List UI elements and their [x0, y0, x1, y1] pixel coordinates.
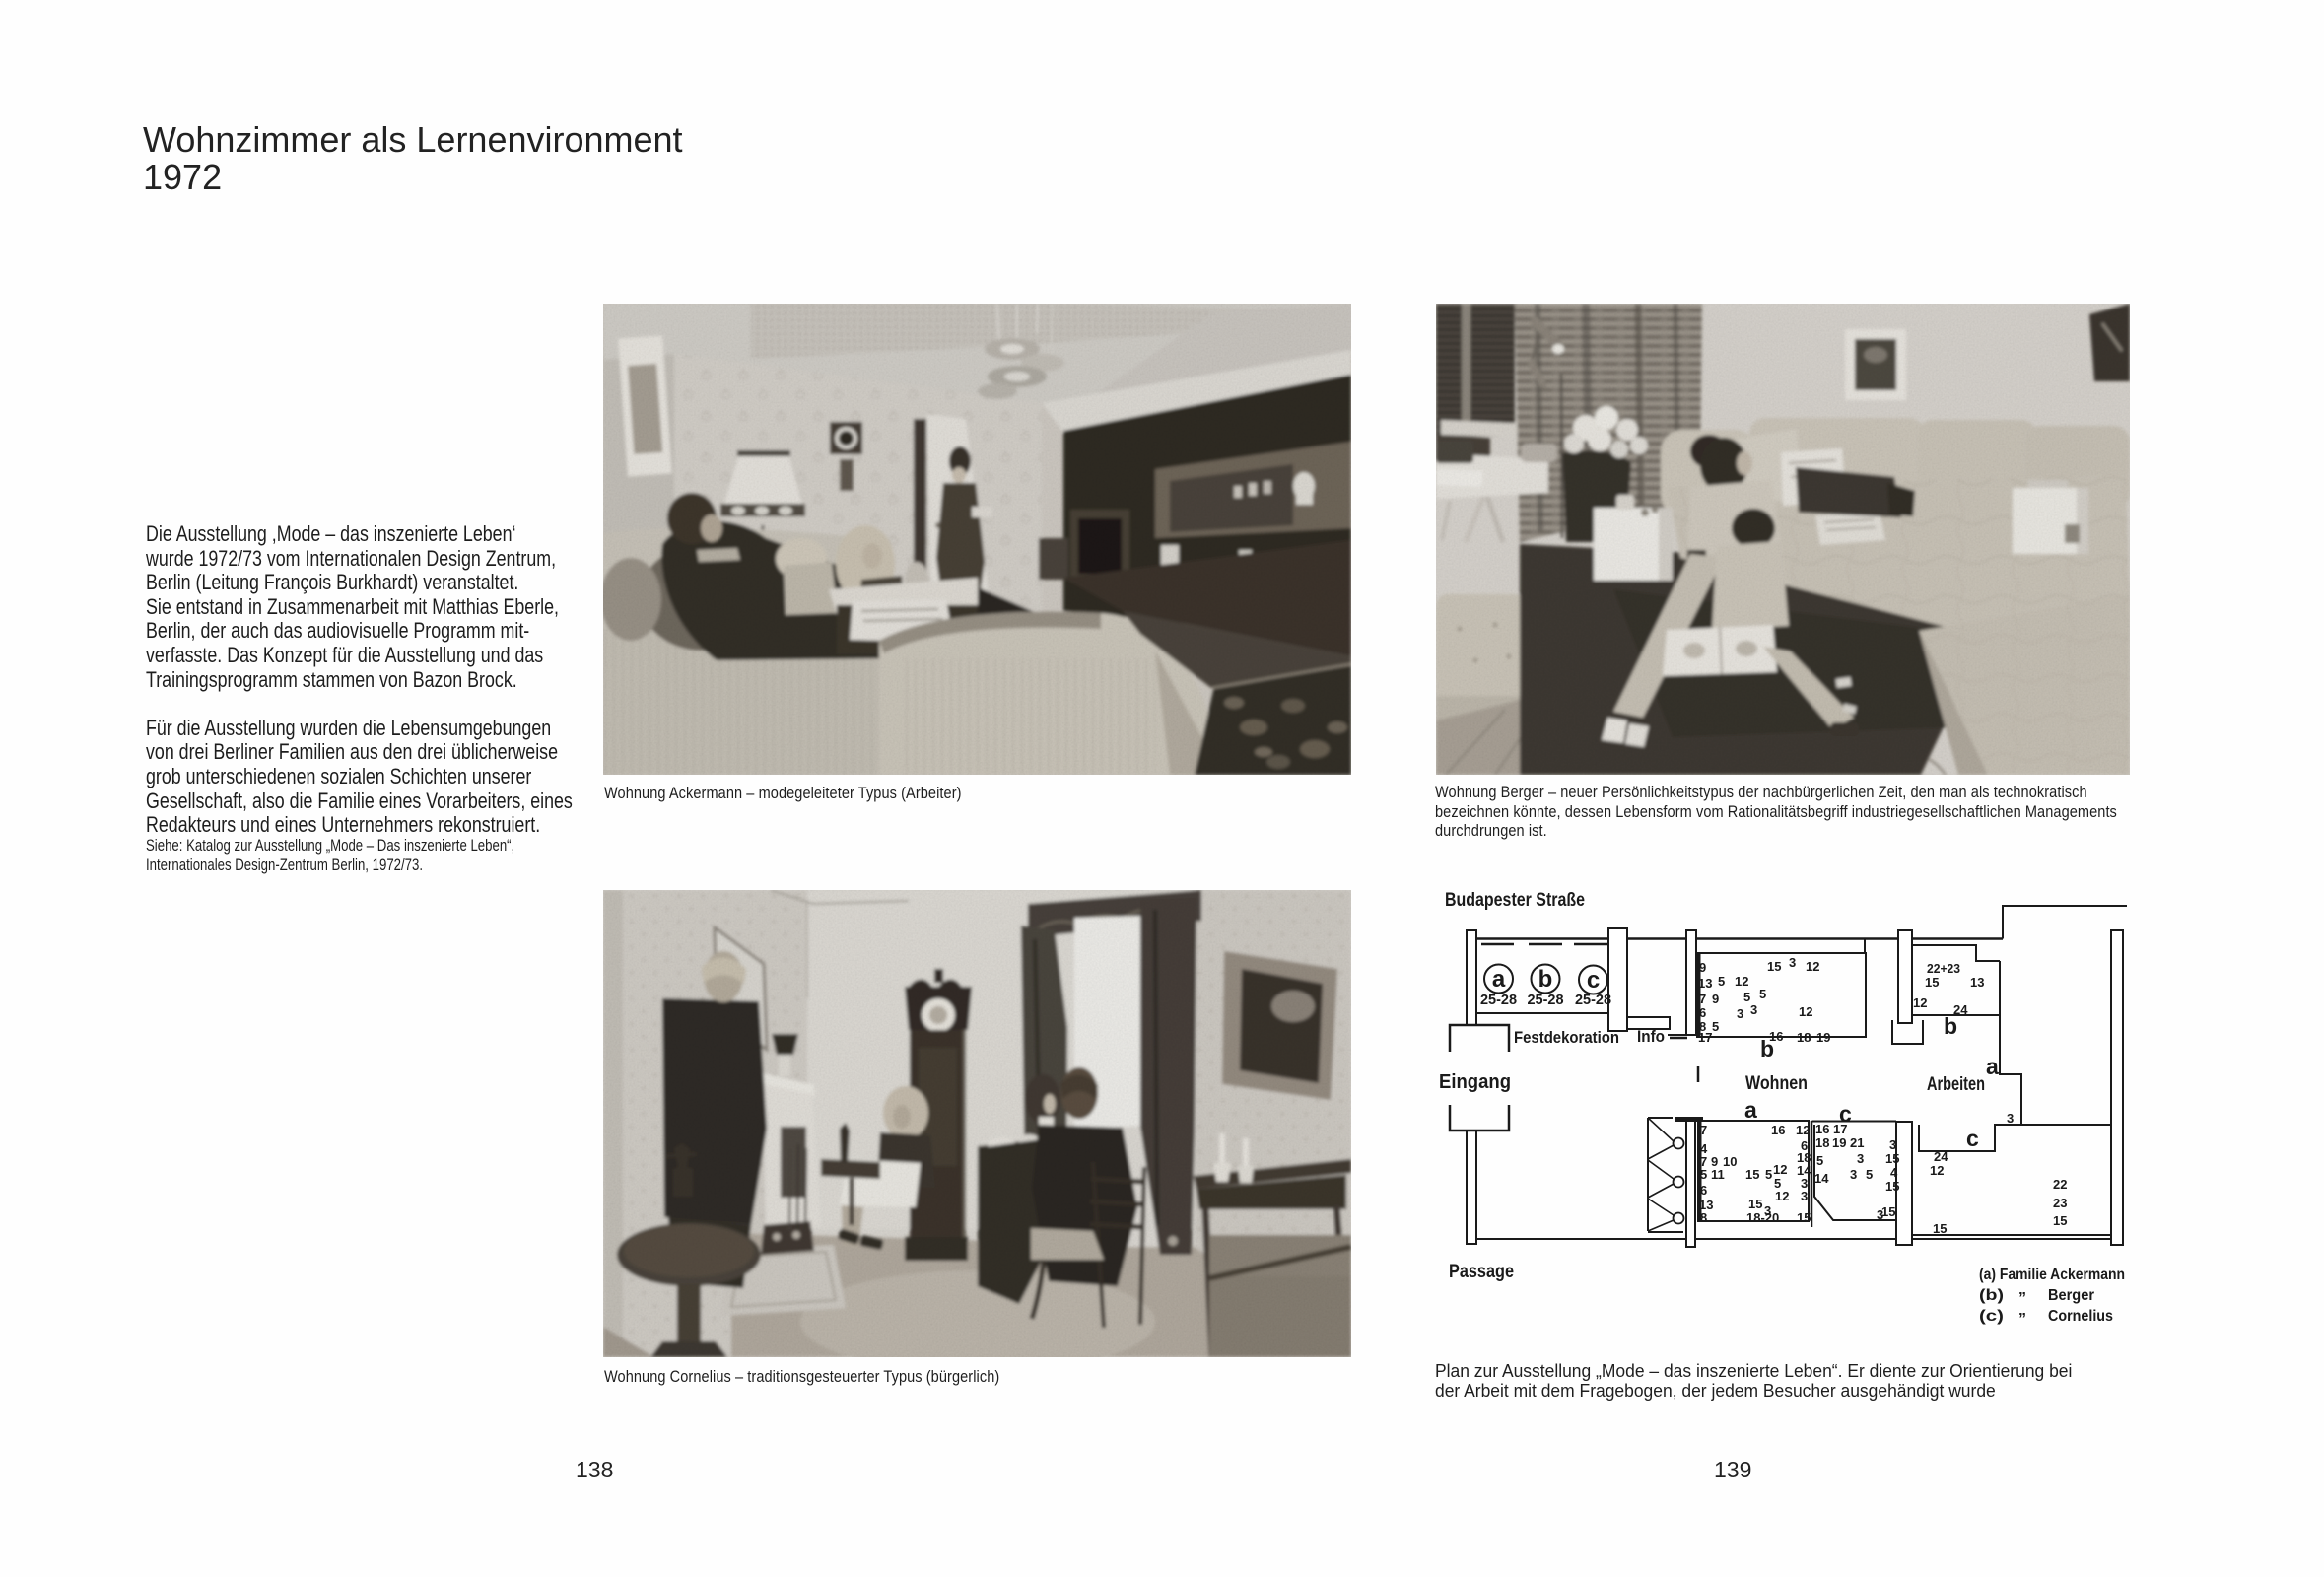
svg-text:3: 3	[1801, 1189, 1808, 1203]
svg-text:3: 3	[1789, 955, 1796, 970]
svg-text:23: 23	[2053, 1196, 2067, 1210]
svg-text:Cornelius: Cornelius	[2048, 1308, 2113, 1325]
svg-text:12: 12	[1773, 1162, 1787, 1177]
svg-text:25-28: 25-28	[1575, 993, 1611, 1008]
svg-text:22+23: 22+23	[1927, 961, 1960, 976]
svg-text:c: c	[1587, 967, 1600, 994]
svg-text:12: 12	[1913, 995, 1927, 1010]
svg-text:5: 5	[1816, 1153, 1823, 1168]
svg-text:a: a	[1744, 1097, 1757, 1123]
svg-text:3: 3	[1850, 1167, 1857, 1182]
svg-text:5: 5	[1700, 1167, 1707, 1182]
svg-text:24: 24	[1953, 1002, 1968, 1017]
svg-text:15: 15	[1885, 1151, 1899, 1166]
svg-text:15: 15	[1797, 1210, 1811, 1225]
svg-text:25-28: 25-28	[1527, 993, 1563, 1008]
svg-text:7: 7	[1699, 992, 1706, 1006]
svg-text:13: 13	[1970, 975, 1984, 990]
svg-text:„: „	[2018, 1302, 2026, 1319]
svg-text:5: 5	[1718, 974, 1725, 989]
svg-text:Arbeiten: Arbeiten	[1927, 1074, 1985, 1095]
svg-text:22: 22	[2053, 1177, 2067, 1192]
svg-text:11: 11	[1711, 1167, 1725, 1182]
svg-text:3: 3	[1737, 1006, 1743, 1021]
svg-text:17: 17	[1698, 1030, 1712, 1045]
svg-text:19: 19	[1816, 1030, 1830, 1045]
svg-text:24: 24	[1934, 1149, 1948, 1164]
svg-text:14: 14	[1814, 1171, 1829, 1186]
svg-text:Eingang: Eingang	[1439, 1071, 1511, 1093]
svg-text:3: 3	[1857, 1151, 1864, 1166]
svg-text:15: 15	[1925, 975, 1939, 990]
svg-text:6: 6	[1700, 1183, 1707, 1198]
svg-text:15: 15	[1881, 1204, 1895, 1219]
svg-text:Budapester Straße: Budapester Straße	[1445, 890, 1585, 911]
svg-text:Berger: Berger	[2048, 1287, 2094, 1304]
svg-text:5: 5	[1712, 1019, 1719, 1034]
svg-text:12: 12	[1806, 959, 1819, 974]
svg-text:4: 4	[1890, 1165, 1898, 1180]
svg-text:18-20: 18-20	[1746, 1210, 1779, 1225]
svg-text:(c): (c)	[1979, 1308, 2004, 1325]
svg-text:18: 18	[1797, 1030, 1811, 1045]
svg-text:a: a	[1492, 966, 1506, 993]
svg-text:19: 19	[1832, 1135, 1846, 1150]
svg-text:15: 15	[1933, 1221, 1947, 1236]
svg-text:15: 15	[1767, 959, 1781, 974]
svg-text:3: 3	[1750, 1002, 1757, 1017]
svg-text:13: 13	[1698, 976, 1712, 991]
svg-text:12: 12	[1799, 1004, 1812, 1019]
svg-text:12: 12	[1930, 1163, 1944, 1178]
svg-text:c: c	[1966, 1126, 1979, 1151]
svg-text:6: 6	[1699, 1005, 1706, 1020]
svg-text:8: 8	[1700, 1210, 1707, 1225]
svg-text:18: 18	[1815, 1135, 1829, 1150]
svg-text:12: 12	[1775, 1189, 1789, 1203]
svg-text:Wohnen: Wohnen	[1745, 1073, 1808, 1094]
svg-text:(b): (b)	[1979, 1287, 2004, 1304]
svg-text:16: 16	[1769, 1029, 1783, 1044]
svg-text:5: 5	[1759, 987, 1766, 1001]
svg-text:5: 5	[1765, 1167, 1772, 1182]
svg-text:21: 21	[1850, 1135, 1864, 1150]
svg-text:3: 3	[2007, 1111, 2014, 1126]
svg-text:10: 10	[1723, 1154, 1737, 1169]
svg-text:15: 15	[2053, 1213, 2067, 1228]
svg-text:17: 17	[1833, 1122, 1847, 1136]
svg-text:a: a	[1986, 1054, 1999, 1079]
svg-text:15: 15	[1885, 1179, 1899, 1194]
svg-text:25-28: 25-28	[1480, 993, 1517, 1008]
svg-text:9: 9	[1712, 992, 1719, 1006]
svg-text:15: 15	[1748, 1197, 1762, 1211]
svg-text:16: 16	[1815, 1122, 1829, 1136]
svg-text:7: 7	[1700, 1123, 1707, 1137]
svg-text:15: 15	[1745, 1167, 1759, 1182]
svg-text:„: „	[2018, 1281, 2026, 1298]
svg-text:(a) Familie Ackermann: (a) Familie Ackermann	[1979, 1267, 2125, 1283]
svg-text:12: 12	[1796, 1123, 1810, 1137]
svg-text:16: 16	[1771, 1123, 1785, 1137]
svg-text:12: 12	[1735, 974, 1748, 989]
svg-text:Passage: Passage	[1449, 1262, 1514, 1282]
svg-text:Info: Info	[1637, 1027, 1665, 1046]
svg-text:b: b	[1538, 966, 1553, 993]
svg-text:9: 9	[1699, 960, 1706, 975]
svg-text:Festdekoration: Festdekoration	[1514, 1028, 1619, 1047]
svg-text:3: 3	[1889, 1137, 1896, 1152]
svg-text:5: 5	[1866, 1167, 1873, 1182]
